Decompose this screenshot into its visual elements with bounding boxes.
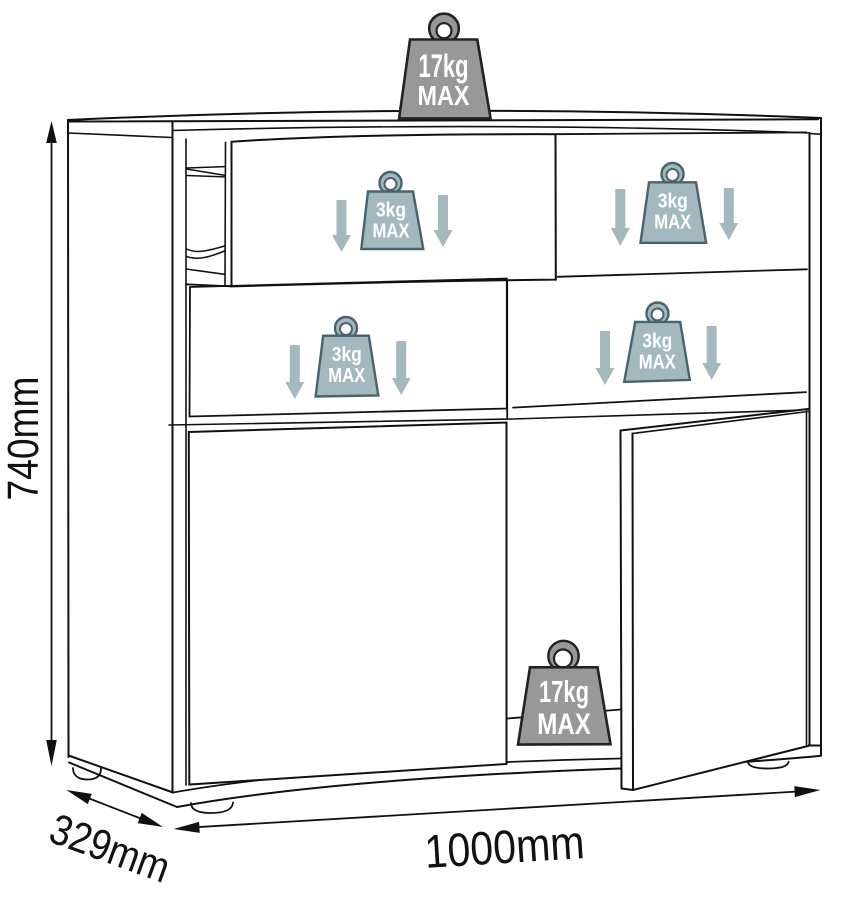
svg-text:MAX: MAX [328, 365, 366, 387]
svg-text:MAX: MAX [639, 351, 677, 373]
svg-text:17kg: 17kg [419, 48, 469, 84]
svg-text:740mm: 740mm [0, 377, 48, 501]
svg-text:MAX: MAX [537, 708, 591, 741]
svg-text:MAX: MAX [373, 221, 411, 243]
svg-text:3kg: 3kg [642, 330, 672, 352]
svg-text:3kg: 3kg [332, 344, 362, 366]
svg-text:3kg: 3kg [658, 190, 688, 212]
svg-text:329mm: 329mm [43, 805, 176, 893]
svg-text:1000mm: 1000mm [423, 815, 586, 878]
svg-text:MAX: MAX [418, 80, 470, 111]
svg-text:MAX: MAX [654, 211, 692, 233]
svg-text:17kg: 17kg [539, 674, 589, 709]
svg-text:3kg: 3kg [376, 200, 406, 222]
